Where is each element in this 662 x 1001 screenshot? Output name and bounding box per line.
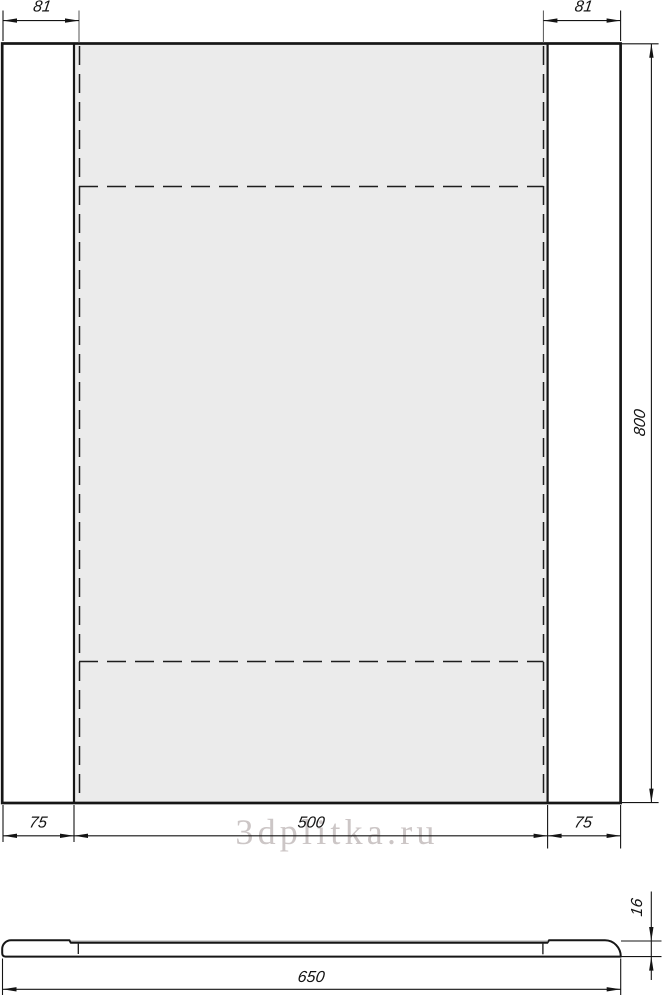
svg-text:75: 75 [573,814,593,832]
svg-text:16: 16 [628,897,646,917]
svg-text:3dplitka.ru: 3dplitka.ru [235,812,438,852]
svg-text:650: 650 [297,968,326,986]
svg-text:75: 75 [28,814,48,832]
svg-text:81: 81 [32,0,52,15]
svg-text:81: 81 [574,0,594,15]
svg-text:800: 800 [631,408,649,437]
svg-text:500: 500 [297,814,326,832]
